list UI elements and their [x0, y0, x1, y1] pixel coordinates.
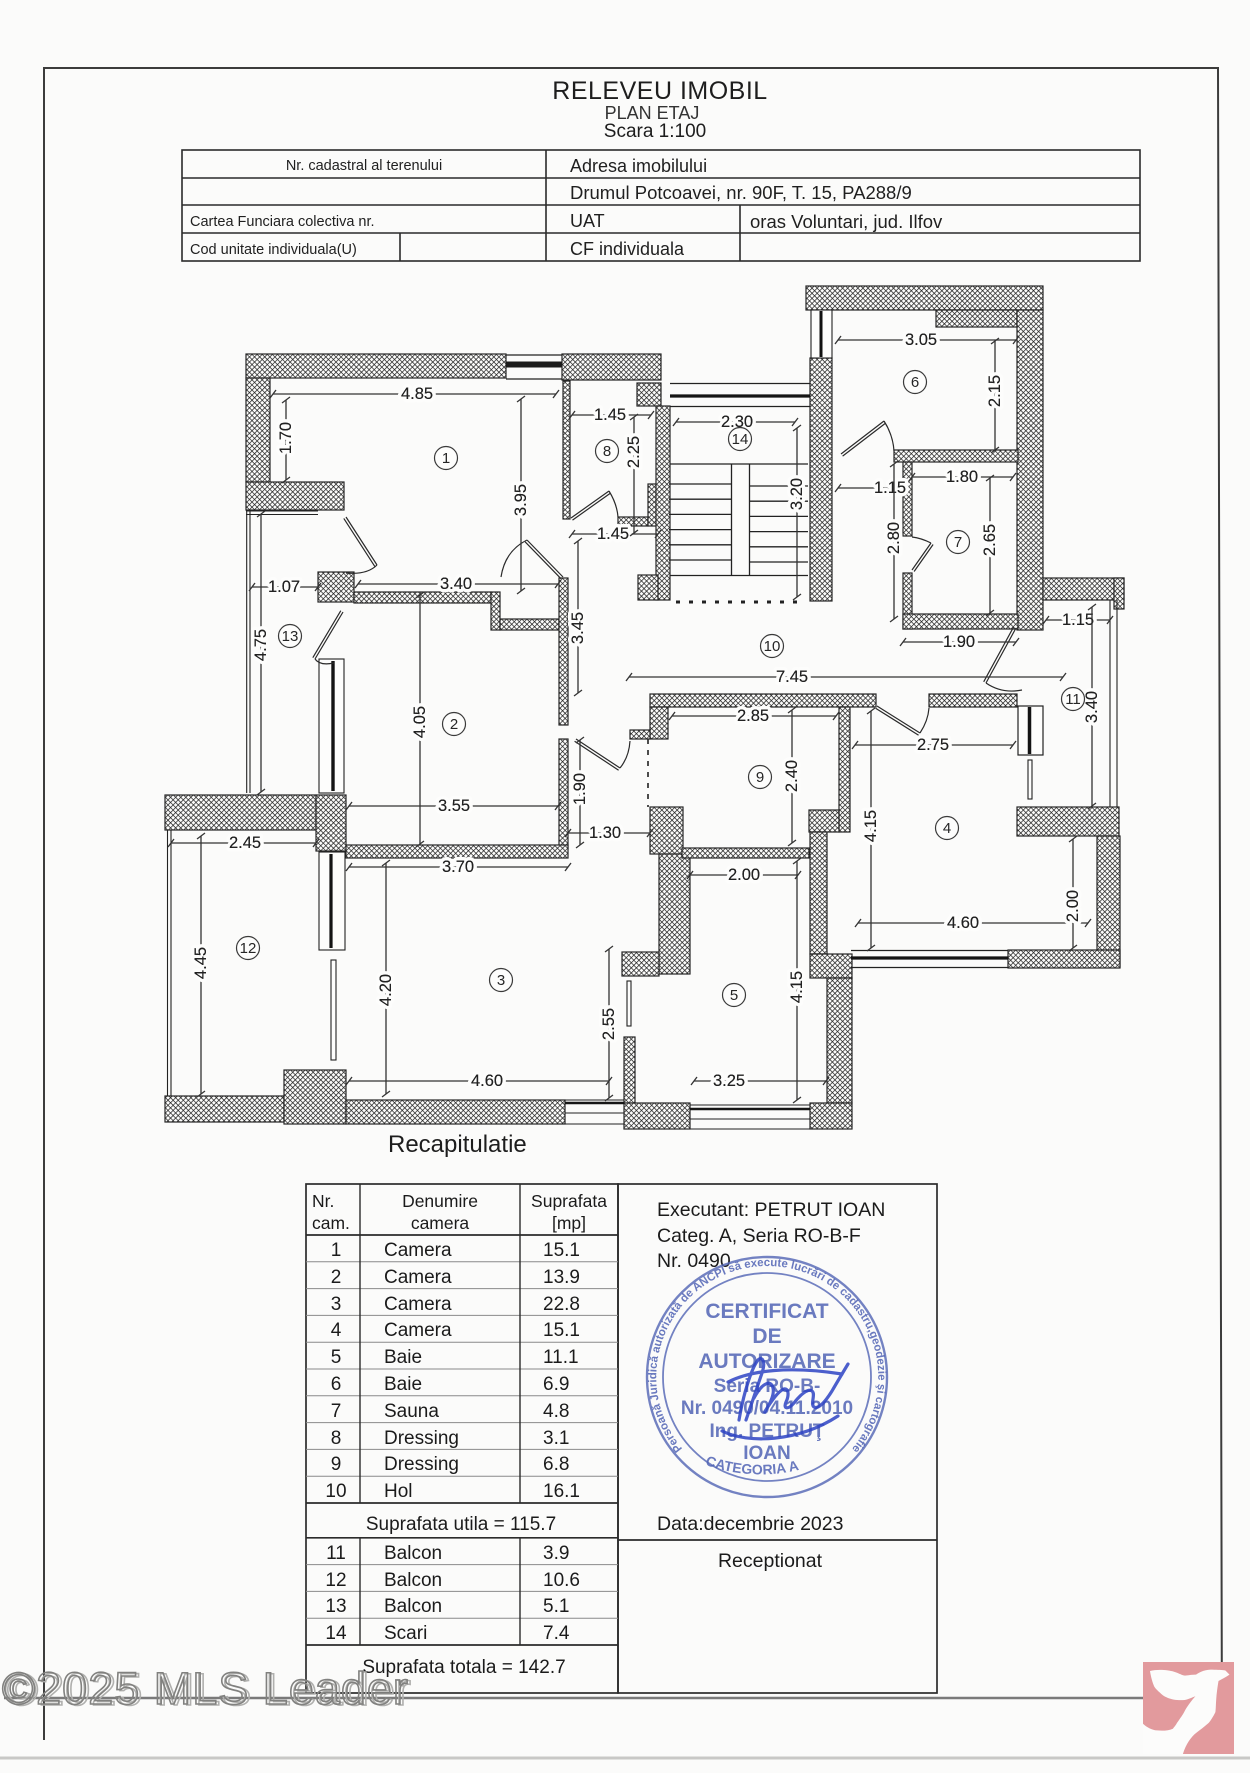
svg-text:1.07: 1.07 — [268, 578, 300, 596]
svg-text:5: 5 — [331, 1347, 342, 1368]
svg-text:12: 12 — [240, 940, 257, 957]
svg-text:Dressing: Dressing — [384, 1454, 459, 1475]
svg-text:cam.: cam. — [312, 1213, 350, 1233]
svg-text:4.45: 4.45 — [192, 947, 210, 979]
svg-text:3.70: 3.70 — [442, 858, 474, 876]
svg-text:13.9: 13.9 — [543, 1267, 580, 1288]
svg-text:13: 13 — [282, 628, 299, 645]
svg-text:camera: camera — [411, 1213, 470, 1233]
svg-text:Adresa imobilului: Adresa imobilului — [570, 156, 707, 176]
svg-text:4.8: 4.8 — [543, 1401, 569, 1422]
svg-text:15.1: 15.1 — [543, 1320, 580, 1341]
svg-text:Scari: Scari — [384, 1623, 427, 1644]
svg-text:3.40: 3.40 — [440, 575, 472, 593]
svg-text:1.90: 1.90 — [943, 633, 975, 651]
svg-text:1.70: 1.70 — [277, 422, 295, 454]
svg-text:Receptionat: Receptionat — [718, 1550, 823, 1572]
svg-text:Denumire: Denumire — [402, 1191, 478, 1211]
svg-text:3.55: 3.55 — [438, 797, 470, 815]
svg-text:Data:decembrie 2023: Data:decembrie 2023 — [657, 1513, 843, 1535]
svg-text:UAT: UAT — [570, 211, 605, 231]
svg-text:9: 9 — [756, 769, 764, 786]
svg-text:1: 1 — [331, 1240, 342, 1261]
svg-text:Suprafata utila = 115.7: Suprafata utila = 115.7 — [366, 1514, 556, 1535]
svg-text:Dressing: Dressing — [384, 1428, 459, 1449]
svg-text:11: 11 — [326, 1543, 346, 1564]
svg-text:[mp]: [mp] — [552, 1213, 586, 1233]
svg-text:Cod unitate individuala(U): Cod unitate individuala(U) — [190, 242, 357, 258]
svg-text:4.15: 4.15 — [788, 971, 806, 1003]
svg-text:3.45: 3.45 — [569, 612, 587, 644]
svg-text:1.15: 1.15 — [874, 479, 906, 497]
svg-text:7: 7 — [954, 534, 962, 551]
svg-text:8: 8 — [331, 1428, 342, 1449]
svg-text:Recapitulatie: Recapitulatie — [388, 1131, 527, 1158]
svg-text:4.05: 4.05 — [411, 706, 429, 738]
svg-text:6: 6 — [911, 374, 919, 391]
svg-text:DE: DE — [752, 1325, 781, 1348]
svg-text:3.95: 3.95 — [512, 484, 530, 516]
svg-text:3.9: 3.9 — [543, 1543, 569, 1564]
svg-text:Balcon: Balcon — [384, 1543, 442, 1564]
svg-text:Hol: Hol — [384, 1481, 413, 1502]
svg-text:6.9: 6.9 — [543, 1374, 569, 1395]
svg-text:7: 7 — [331, 1401, 342, 1422]
svg-text:Camera: Camera — [384, 1294, 452, 1315]
svg-text:4.60: 4.60 — [947, 914, 979, 932]
svg-text:Camera: Camera — [384, 1267, 452, 1288]
svg-text:2: 2 — [450, 716, 458, 733]
svg-text:7.45: 7.45 — [776, 668, 808, 686]
svg-text:8: 8 — [603, 443, 611, 460]
svg-text:Categ. A, Seria RO-B-F: Categ. A, Seria RO-B-F — [657, 1225, 861, 1247]
svg-text:RELEVEU IMOBIL: RELEVEU IMOBIL — [552, 77, 767, 105]
svg-text:4.85: 4.85 — [401, 385, 433, 403]
svg-text:©2025 MLS Leader: ©2025 MLS Leader — [2, 1663, 409, 1714]
svg-text:Balcon: Balcon — [384, 1596, 442, 1617]
svg-text:2.00: 2.00 — [1064, 890, 1082, 922]
svg-text:Nr. cadastral al terenului: Nr. cadastral al terenului — [286, 158, 442, 174]
svg-text:3.05: 3.05 — [905, 331, 937, 349]
svg-text:3.20: 3.20 — [788, 478, 806, 510]
svg-text:1.80: 1.80 — [946, 468, 978, 486]
svg-text:2.55: 2.55 — [600, 1008, 618, 1040]
svg-text:Drumul Potcoavei, nr. 90F, T.: Drumul Potcoavei, nr. 90F, T. 15, PA288/… — [570, 182, 912, 203]
svg-text:3.40: 3.40 — [1083, 691, 1101, 723]
svg-text:3.1: 3.1 — [543, 1428, 569, 1449]
svg-text:14: 14 — [732, 431, 749, 448]
svg-text:11.1: 11.1 — [543, 1347, 579, 1368]
svg-text:14: 14 — [325, 1623, 347, 1644]
svg-text:2.15: 2.15 — [986, 375, 1004, 407]
svg-text:4.20: 4.20 — [377, 974, 395, 1006]
svg-text:4.15: 4.15 — [862, 810, 880, 842]
svg-text:4: 4 — [943, 820, 951, 837]
svg-text:Scara 1:100: Scara 1:100 — [604, 121, 706, 142]
svg-text:2.45: 2.45 — [229, 834, 261, 852]
svg-text:9: 9 — [331, 1454, 342, 1475]
svg-text:2: 2 — [331, 1267, 342, 1288]
svg-text:7.4: 7.4 — [543, 1623, 570, 1644]
svg-text:3: 3 — [497, 972, 505, 989]
svg-text:IOAN: IOAN — [743, 1443, 791, 1464]
svg-text:4.75: 4.75 — [252, 629, 270, 661]
svg-text:4: 4 — [331, 1320, 342, 1341]
svg-text:1.15: 1.15 — [1062, 611, 1094, 629]
svg-text:3: 3 — [331, 1294, 342, 1315]
svg-text:Nr.: Nr. — [312, 1191, 334, 1211]
svg-text:2.85: 2.85 — [737, 707, 769, 725]
svg-text:11: 11 — [1065, 691, 1081, 708]
svg-text:Suprafata: Suprafata — [531, 1191, 607, 1211]
svg-text:PLAN ETAJ: PLAN ETAJ — [605, 103, 700, 123]
svg-text:Camera: Camera — [384, 1240, 452, 1261]
svg-text:2.65: 2.65 — [981, 524, 999, 556]
svg-text:Camera: Camera — [384, 1320, 452, 1341]
svg-text:4.60: 4.60 — [471, 1072, 503, 1090]
svg-text:1.45: 1.45 — [597, 525, 629, 543]
svg-text:2.75: 2.75 — [917, 736, 949, 754]
svg-text:Sauna: Sauna — [384, 1401, 439, 1422]
svg-text:22.8: 22.8 — [543, 1294, 580, 1315]
svg-text:5: 5 — [730, 987, 738, 1004]
svg-text:10.6: 10.6 — [543, 1570, 580, 1591]
svg-text:Baie: Baie — [384, 1347, 422, 1368]
svg-text:12: 12 — [325, 1570, 346, 1591]
svg-text:3.25: 3.25 — [713, 1072, 745, 1090]
svg-text:2.25: 2.25 — [625, 436, 643, 468]
svg-text:10: 10 — [325, 1481, 346, 1502]
svg-text:1.30: 1.30 — [589, 824, 621, 842]
svg-text:Balcon: Balcon — [384, 1570, 442, 1591]
svg-text:1.45: 1.45 — [594, 406, 626, 424]
svg-text:1.90: 1.90 — [571, 773, 589, 805]
svg-text:2.00: 2.00 — [728, 866, 760, 884]
svg-text:1: 1 — [442, 450, 450, 467]
svg-text:16.1: 16.1 — [543, 1481, 580, 1502]
svg-text:10: 10 — [764, 638, 781, 655]
svg-text:CERTIFICAT: CERTIFICAT — [705, 1300, 828, 1323]
svg-text:CF individuala: CF individuala — [570, 239, 685, 259]
svg-text:Cartea Funciara colectiva nr.: Cartea Funciara colectiva nr. — [190, 214, 375, 230]
svg-text:5.1: 5.1 — [543, 1596, 569, 1617]
svg-text:15.1: 15.1 — [543, 1240, 580, 1261]
svg-text:Baie: Baie — [384, 1374, 422, 1395]
svg-text:13: 13 — [325, 1596, 346, 1617]
svg-text:6.8: 6.8 — [543, 1454, 569, 1475]
svg-text:2.40: 2.40 — [783, 760, 801, 792]
svg-text:oras Voluntari, jud. Ilfov: oras Voluntari, jud. Ilfov — [750, 211, 943, 232]
svg-text:Executant: PETRUT IOAN: Executant: PETRUT IOAN — [657, 1199, 885, 1221]
svg-text:2.80: 2.80 — [885, 522, 903, 554]
svg-text:6: 6 — [331, 1374, 342, 1395]
